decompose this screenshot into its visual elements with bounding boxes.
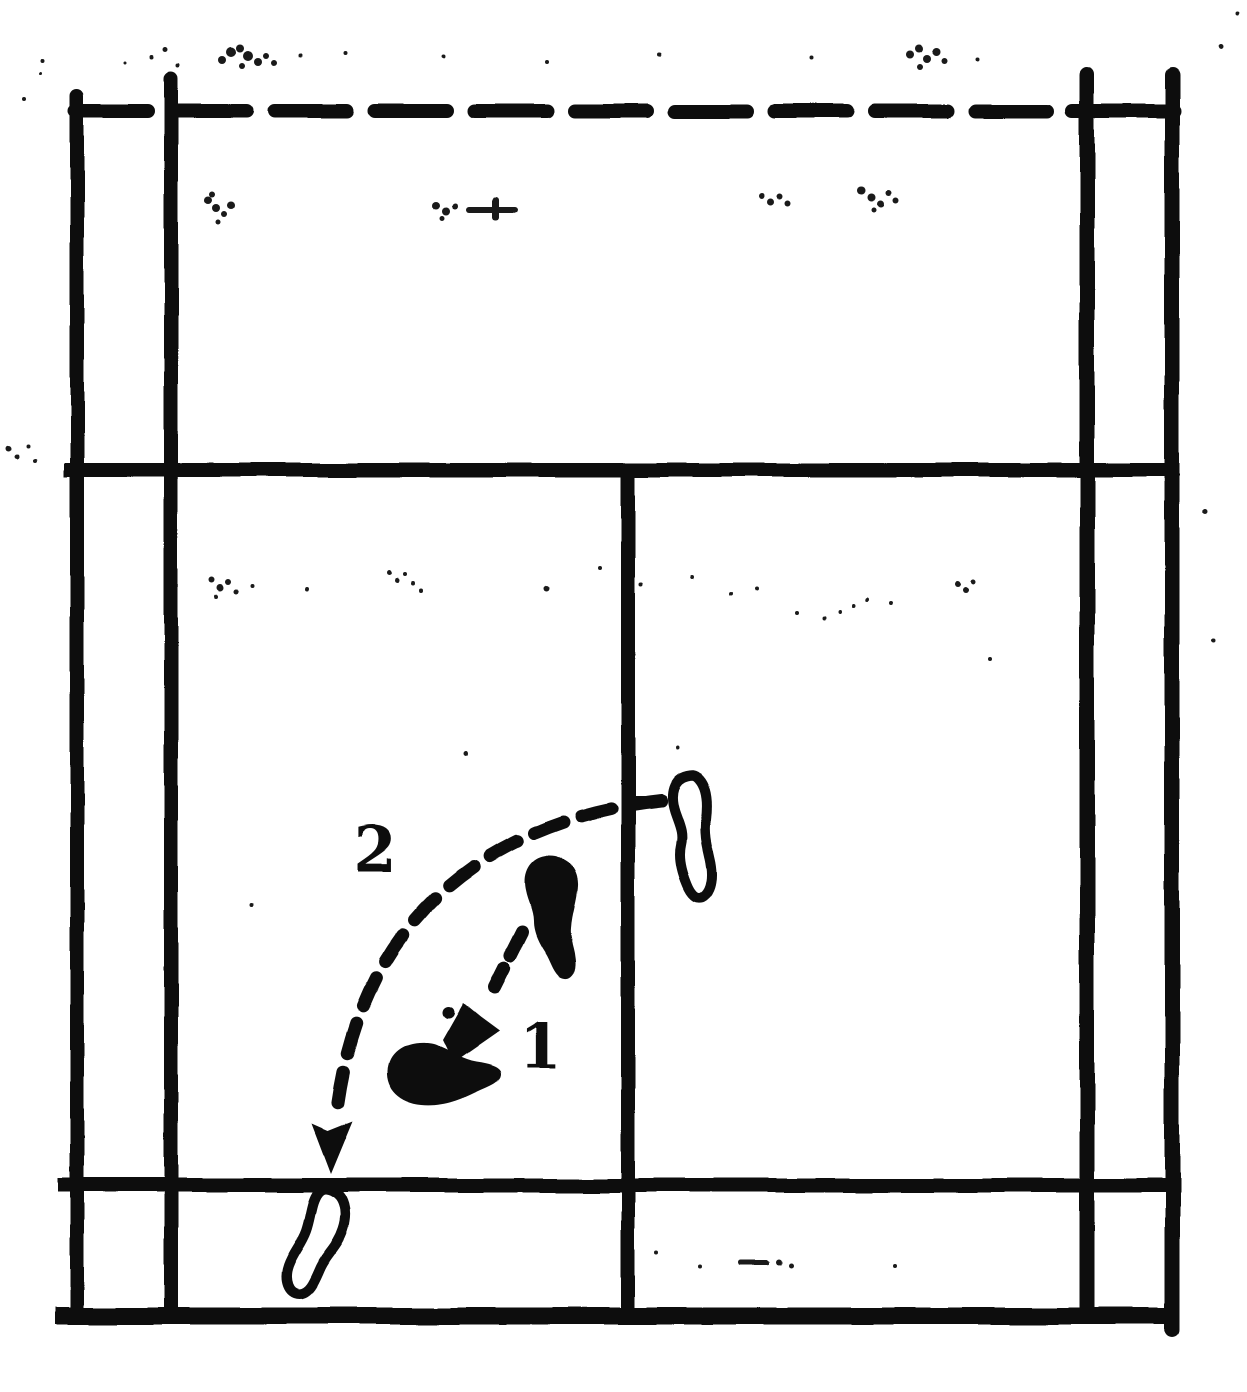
route-2-arrowhead [312, 1121, 353, 1174]
movement-route-1 [442, 932, 522, 1063]
court-diagram-canvas: 2 1 [0, 0, 1247, 1392]
route-1-dot [442, 1006, 454, 1018]
court-lines [55, 75, 1180, 1330]
route-1-label: 1 [518, 1010, 561, 1083]
footprint-start-shape [672, 775, 712, 897]
footprint-pivot-filled [525, 856, 578, 979]
scanned-court-diagram: 2 1 [0, 0, 1247, 1392]
footprint-start-outline [632, 775, 712, 897]
footprint-landing-filled [387, 1043, 501, 1105]
route-1-shaft [494, 932, 522, 988]
footprint-finish-outline [286, 1189, 346, 1294]
route-2-label: 2 [353, 813, 396, 886]
